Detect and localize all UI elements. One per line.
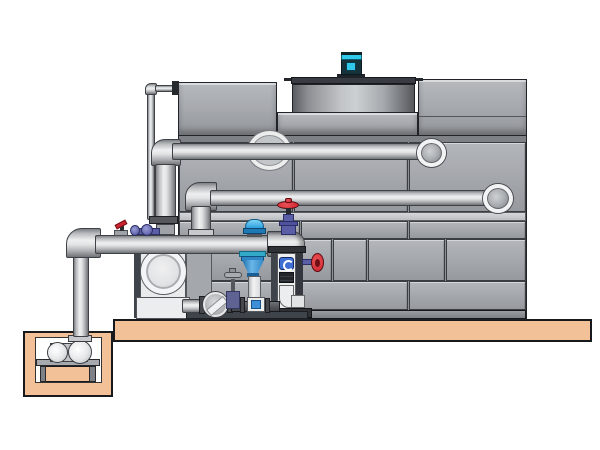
wafer-check-valve: [203, 292, 228, 317]
fan-motor-window: [346, 62, 356, 71]
tower-panel: [368, 239, 445, 281]
middle-pipe-end-elbow: [483, 184, 513, 213]
sump-platform-leg-left: [40, 366, 46, 382]
gate-valve-body: [281, 225, 296, 235]
pump-suction-face: [141, 249, 186, 294]
stand-gauge: [279, 257, 294, 270]
tower-panel: [333, 239, 367, 281]
purple-fitting: [130, 225, 140, 236]
inline-gate-knob: [229, 268, 236, 273]
fan-deck-band: [277, 112, 418, 136]
side-handwheel-hub: [315, 259, 320, 267]
sump-platform-leg-right: [89, 366, 96, 382]
tower-panel: [409, 221, 526, 239]
tower-panel: [301, 281, 408, 310]
fan-shroud: [292, 84, 415, 113]
butterfly-actuator-base: [247, 234, 262, 237]
gate-valve-hub: [285, 198, 292, 203]
upper-pipe: [172, 143, 422, 160]
left-plenum-box: [178, 82, 277, 136]
sump-pit-back-wall: [44, 366, 93, 382]
run-flange: [265, 298, 270, 313]
right-plenum-seam: [419, 116, 526, 117]
middle-pipe: [210, 190, 487, 206]
standpipe-flange: [149, 216, 178, 224]
sump-pump-casing-end: [68, 340, 92, 364]
purple-fitting: [141, 224, 153, 236]
shroud-top-rim: [291, 77, 416, 84]
fan-motor-cap-top: [341, 52, 362, 55]
tee-blue-insert: [251, 300, 261, 309]
sump-riser-pipe: [73, 253, 89, 337]
run-flange: [240, 297, 245, 313]
stand-junction-box: [279, 272, 294, 283]
gauge-dial: [283, 260, 294, 271]
tower-light-band: [179, 212, 526, 221]
inline-gate-body: [226, 291, 240, 309]
makeup-tank-flange: [172, 81, 179, 95]
tower-panel: [301, 221, 408, 239]
stand-top-bar: [268, 246, 306, 253]
right-plenum-box: [418, 79, 527, 136]
illustration-canvas: [0, 0, 600, 450]
pump-rear-casing: [186, 250, 212, 300]
standpipe: [155, 164, 176, 218]
stand-drain-stub: [291, 295, 305, 308]
sump-pump-motor-end: [47, 342, 68, 363]
tower-panel: [409, 281, 526, 310]
foundation-slab: [113, 319, 592, 342]
upper-pipe-end-elbow: [417, 139, 446, 167]
tower-panel: [446, 239, 526, 281]
